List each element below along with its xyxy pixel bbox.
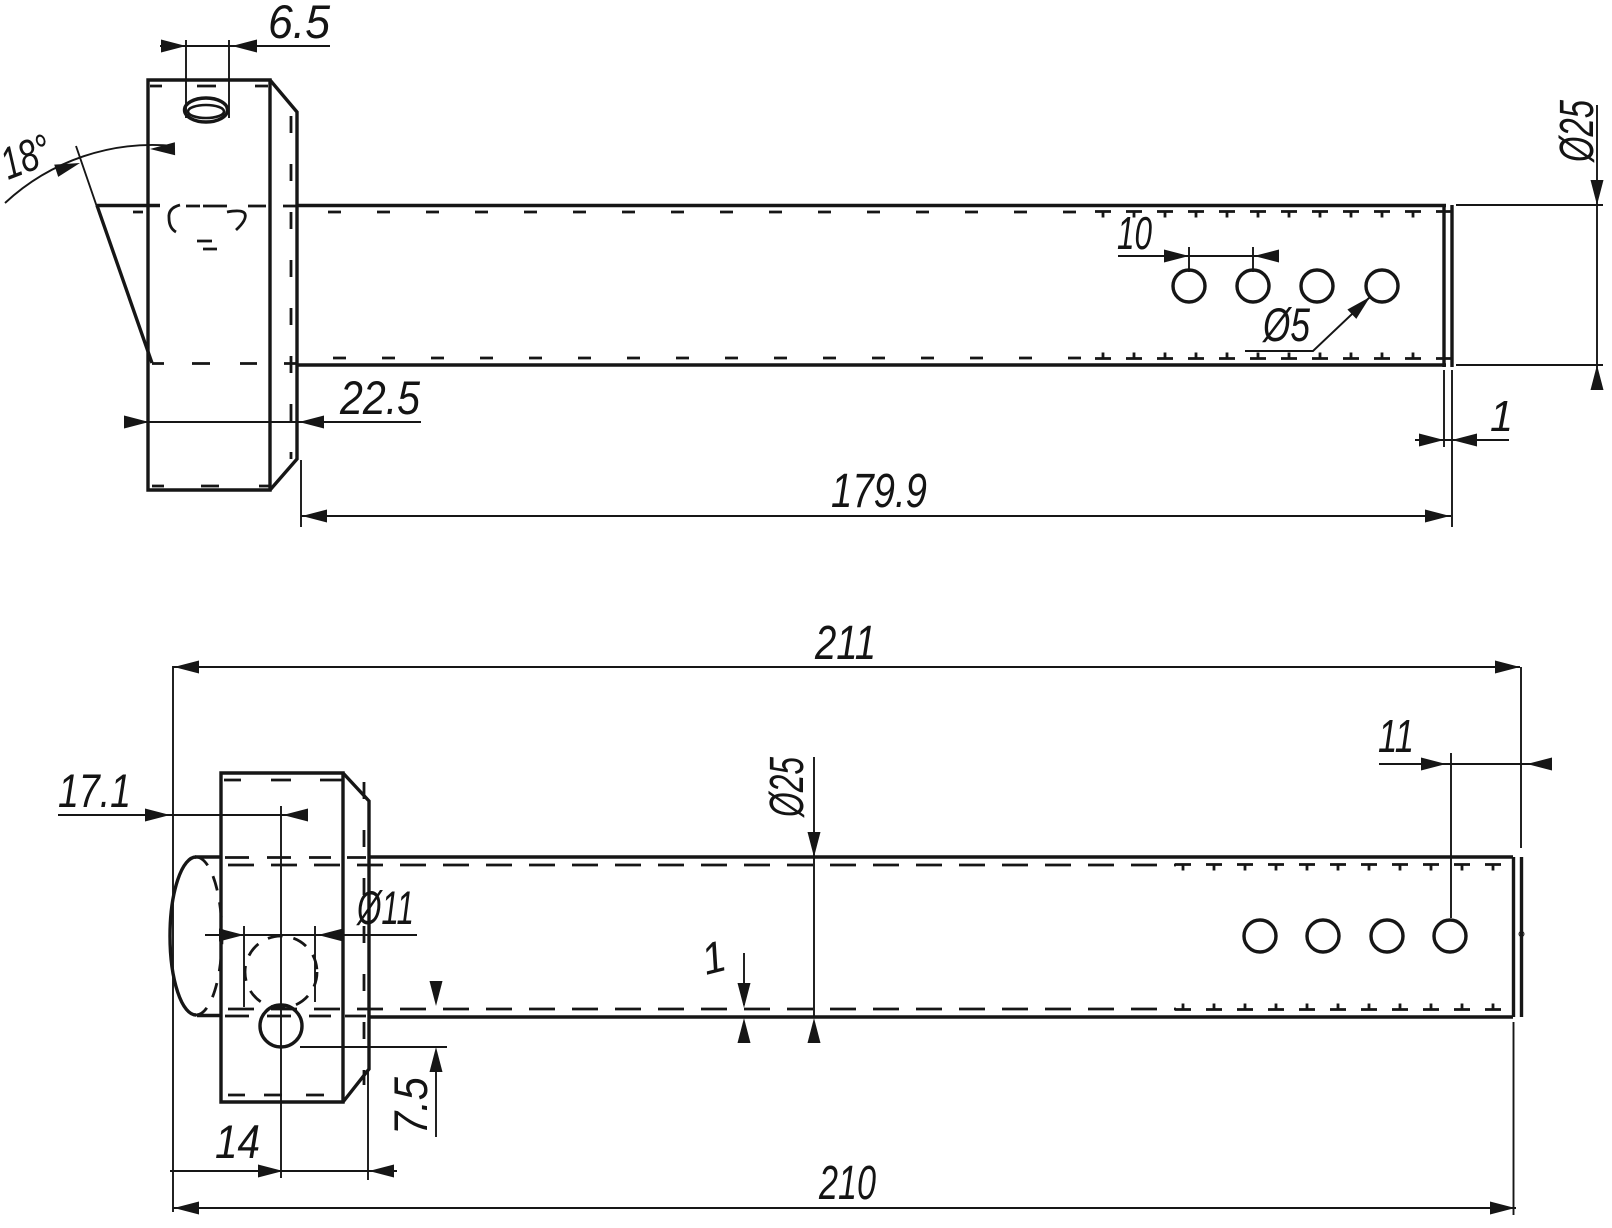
svg-text:10: 10	[1117, 207, 1152, 259]
svg-text:7.5: 7.5	[384, 1076, 437, 1135]
svg-text:Ø25: Ø25	[761, 757, 814, 819]
svg-text:Ø5: Ø5	[1262, 298, 1311, 351]
svg-text:22.5: 22.5	[339, 371, 421, 424]
svg-text:Ø25: Ø25	[1551, 100, 1604, 164]
svg-text:211: 211	[814, 617, 876, 670]
svg-text:179.9: 179.9	[831, 465, 927, 518]
svg-text:14: 14	[215, 1115, 260, 1168]
svg-text:6.5: 6.5	[268, 0, 331, 48]
svg-text:1: 1	[1490, 392, 1513, 441]
svg-text:Ø11: Ø11	[356, 881, 414, 934]
svg-text:17.1: 17.1	[58, 764, 131, 817]
svg-text:11: 11	[1378, 710, 1414, 762]
svg-text:210: 210	[818, 1157, 876, 1210]
